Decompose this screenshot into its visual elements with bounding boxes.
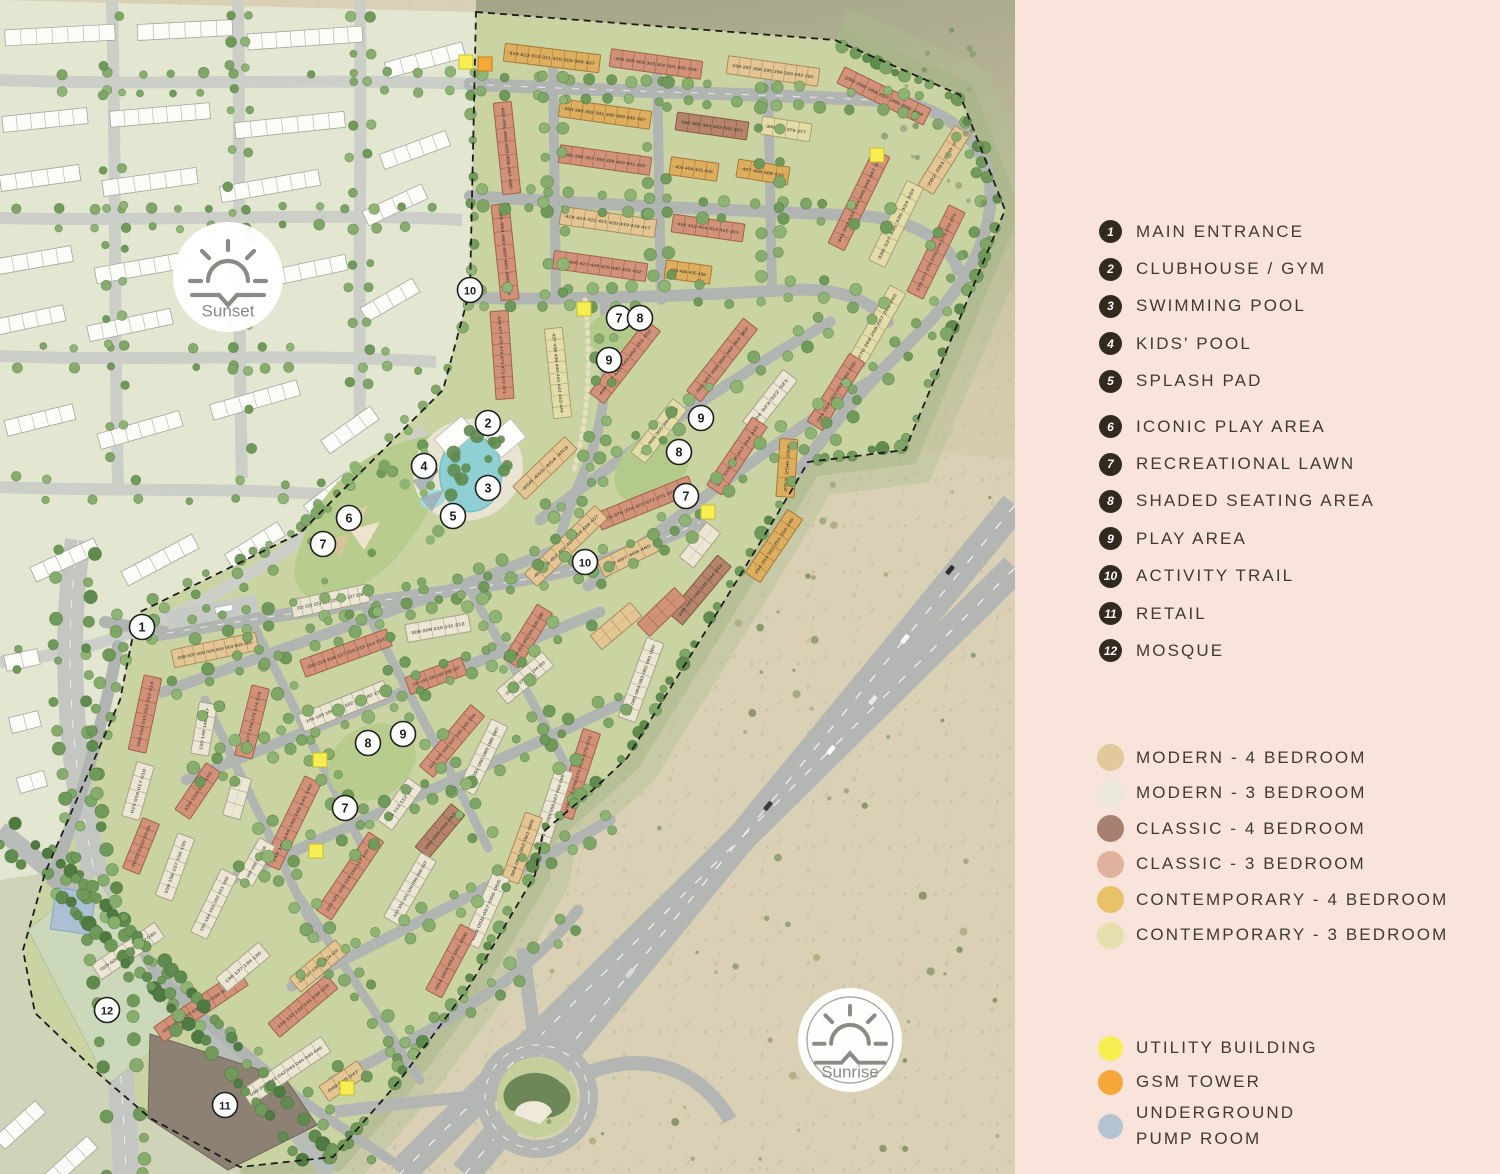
map-marker-8: 8 bbox=[667, 440, 692, 465]
master-plan-page: 314 313 312 311 310 309 308 307306 305 3… bbox=[0, 0, 1500, 1174]
legend-panel: 1MAIN ENTRANCE 2CLUBHOUSE / GYM 3SWIMMIN… bbox=[1015, 0, 1500, 1174]
svg-text:7: 7 bbox=[683, 489, 690, 503]
legend-item-mosque: 12MOSQUE bbox=[1099, 632, 1375, 669]
svg-text:3: 3 bbox=[485, 481, 492, 495]
map-marker-5: 5 bbox=[441, 504, 466, 529]
svg-text:10: 10 bbox=[579, 557, 591, 569]
svg-text:9: 9 bbox=[606, 353, 613, 367]
utility-building-marker bbox=[870, 148, 884, 162]
number-badge: 1 bbox=[1099, 220, 1122, 243]
legend-item-recreational-lawn: 7RECREATIONAL LAWN bbox=[1099, 445, 1375, 482]
color-swatch bbox=[1097, 815, 1124, 842]
svg-text:5: 5 bbox=[450, 509, 457, 523]
utility-building-marker bbox=[340, 1081, 354, 1095]
number-badge: 10 bbox=[1099, 565, 1122, 588]
color-swatch bbox=[1097, 922, 1124, 949]
number-badge: 9 bbox=[1099, 527, 1122, 550]
legend-type-classic-4br: CLASSIC - 4 BEDROOM bbox=[1097, 811, 1448, 847]
color-swatch bbox=[1097, 886, 1124, 913]
color-swatch bbox=[1098, 1036, 1123, 1061]
svg-text:7: 7 bbox=[320, 537, 327, 551]
utility-building-marker bbox=[459, 55, 473, 69]
facility-legend: UTILITY BUILDING GSM TOWER UNDERGROUND P… bbox=[1098, 1031, 1318, 1153]
legend-item-swimming-pool: 3SWIMMING POOL bbox=[1099, 288, 1375, 325]
legend-item-clubhouse: 2CLUBHOUSE / GYM bbox=[1099, 250, 1375, 287]
site-map-canvas: 314 313 312 311 310 309 308 307306 305 3… bbox=[0, 0, 1015, 1174]
sunset-badge: Sunset bbox=[173, 222, 283, 332]
svg-text:7: 7 bbox=[342, 801, 349, 815]
svg-text:7: 7 bbox=[616, 311, 623, 325]
legend-type-contemporary-4br: CONTEMPORARY - 4 BEDROOM bbox=[1097, 882, 1448, 918]
utility-building-marker bbox=[701, 505, 715, 519]
map-marker-7: 7 bbox=[674, 484, 699, 509]
amenity-legend: 1MAIN ENTRANCE 2CLUBHOUSE / GYM 3SWIMMIN… bbox=[1099, 213, 1375, 670]
map-marker-2: 2 bbox=[476, 411, 501, 436]
legend-item-shaded-seating: 8SHADED SEATING AREA bbox=[1099, 483, 1375, 520]
number-badge: 4 bbox=[1099, 332, 1122, 355]
number-badge: 5 bbox=[1099, 370, 1122, 393]
legend-gsm-tower: GSM TOWER bbox=[1098, 1065, 1318, 1099]
unit-type-legend: MODERN - 4 BEDROOM MODERN - 3 BEDROOM CL… bbox=[1097, 740, 1448, 953]
map-marker-3: 3 bbox=[476, 476, 501, 501]
svg-text:8: 8 bbox=[365, 736, 372, 750]
legend-item-splash-pad: 5SPLASH PAD bbox=[1099, 363, 1375, 400]
map-marker-4: 4 bbox=[412, 454, 437, 479]
color-swatch bbox=[1098, 1070, 1123, 1095]
gsm-tower-marker bbox=[478, 57, 492, 71]
legend-item-retail: 11RETAIL bbox=[1099, 595, 1375, 632]
utility-building-marker bbox=[309, 844, 323, 858]
number-badge: 7 bbox=[1099, 453, 1122, 476]
map-marker-9: 9 bbox=[689, 406, 714, 431]
map-marker-10: 10 bbox=[458, 278, 483, 303]
svg-text:12: 12 bbox=[101, 1005, 113, 1017]
map-marker-1: 1 bbox=[130, 615, 155, 640]
color-swatch bbox=[1097, 851, 1124, 878]
map-marker-8: 8 bbox=[628, 306, 653, 331]
legend-underground-pump-room: UNDERGROUND PUMP ROOM bbox=[1098, 1099, 1318, 1153]
map-marker-7: 7 bbox=[311, 532, 336, 557]
svg-text:2: 2 bbox=[485, 416, 492, 430]
map-marker-12: 12 bbox=[95, 998, 120, 1023]
svg-text:6: 6 bbox=[346, 511, 353, 525]
legend-item-play-area: 9PLAY AREA bbox=[1099, 520, 1375, 557]
svg-text:8: 8 bbox=[676, 445, 683, 459]
legend-item-iconic-play-area: 6ICONIC PLAY AREA bbox=[1099, 408, 1375, 445]
map-marker-10: 10 bbox=[573, 550, 598, 575]
svg-text:10: 10 bbox=[464, 285, 476, 297]
utility-building-marker bbox=[313, 753, 327, 767]
number-badge: 8 bbox=[1099, 490, 1122, 513]
site-map: 314 313 312 311 310 309 308 307306 305 3… bbox=[0, 0, 1015, 1174]
svg-text:11: 11 bbox=[219, 1100, 231, 1112]
color-swatch bbox=[1097, 780, 1124, 807]
legend-type-classic-3br: CLASSIC - 3 BEDROOM bbox=[1097, 847, 1448, 883]
number-badge: 6 bbox=[1099, 415, 1122, 438]
legend-item-kids-pool: 4KIDS' POOL bbox=[1099, 325, 1375, 362]
svg-text:1: 1 bbox=[139, 620, 146, 634]
map-marker-9: 9 bbox=[391, 722, 416, 747]
map-marker-9: 9 bbox=[597, 348, 622, 373]
legend-type-contemporary-3br: CONTEMPORARY - 3 BEDROOM bbox=[1097, 918, 1448, 954]
number-badge: 11 bbox=[1099, 602, 1122, 625]
svg-text:Sunrise: Sunrise bbox=[821, 1062, 879, 1081]
number-badge: 2 bbox=[1099, 258, 1122, 281]
color-swatch bbox=[1097, 744, 1124, 771]
svg-text:Sunset: Sunset bbox=[202, 302, 255, 321]
map-marker-7: 7 bbox=[333, 796, 358, 821]
svg-text:8: 8 bbox=[637, 311, 644, 325]
sunrise-badge: Sunrise bbox=[798, 988, 902, 1092]
legend-type-modern-4br: MODERN - 4 BEDROOM bbox=[1097, 740, 1448, 776]
color-swatch bbox=[1098, 1114, 1123, 1139]
svg-text:4: 4 bbox=[421, 459, 428, 473]
legend-type-modern-3br: MODERN - 3 BEDROOM bbox=[1097, 776, 1448, 812]
map-marker-6: 6 bbox=[337, 506, 362, 531]
map-marker-11: 11 bbox=[213, 1093, 238, 1118]
svg-text:9: 9 bbox=[400, 727, 407, 741]
utility-building-marker bbox=[577, 302, 591, 316]
map-marker-8: 8 bbox=[356, 731, 381, 756]
number-badge: 3 bbox=[1099, 295, 1122, 318]
svg-text:9: 9 bbox=[698, 411, 705, 425]
legend-item-activity-trail: 10ACTIVITY TRAIL bbox=[1099, 558, 1375, 595]
number-badge: 12 bbox=[1099, 639, 1122, 662]
legend-utility-building: UTILITY BUILDING bbox=[1098, 1031, 1318, 1065]
legend-item-main-entrance: 1MAIN ENTRANCE bbox=[1099, 213, 1375, 250]
